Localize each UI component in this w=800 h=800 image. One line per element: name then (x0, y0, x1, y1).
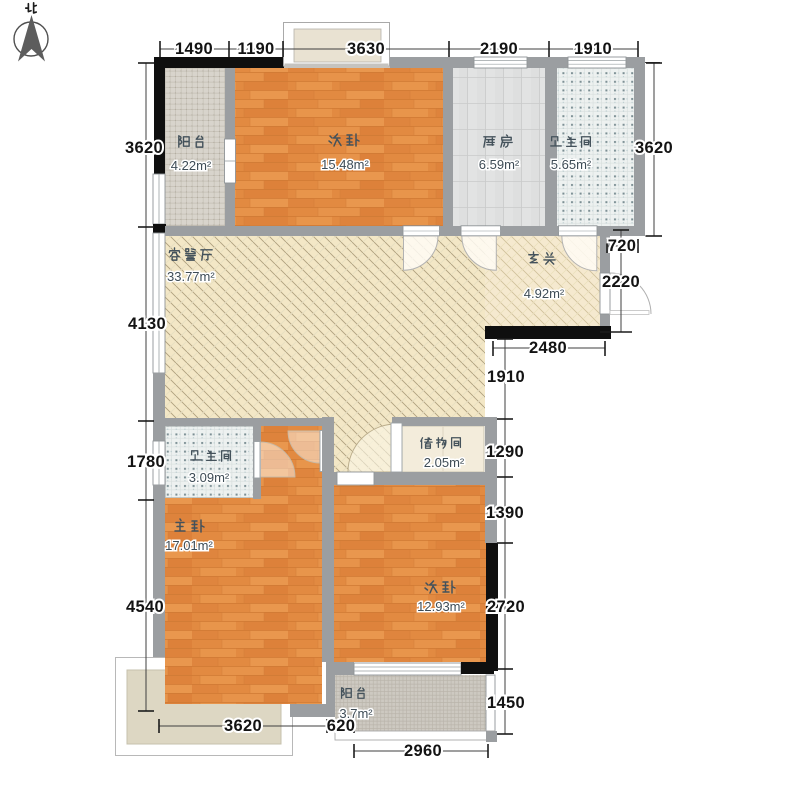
svg-text:4.92m²: 4.92m² (524, 286, 565, 301)
svg-text:4130: 4130 (128, 315, 166, 333)
svg-text:1780: 1780 (127, 453, 165, 471)
svg-text:2480: 2480 (529, 339, 567, 357)
svg-text:1490: 1490 (175, 40, 213, 58)
svg-text:3630: 3630 (347, 40, 385, 58)
svg-text:2720: 2720 (487, 598, 525, 616)
svg-text:2220: 2220 (602, 273, 640, 291)
svg-text:1190: 1190 (238, 40, 275, 58)
svg-text:4.22m²: 4.22m² (171, 158, 212, 173)
svg-text:4540: 4540 (126, 598, 164, 616)
svg-text:3620: 3620 (635, 139, 673, 157)
svg-text:1910: 1910 (487, 368, 525, 386)
svg-text:1290: 1290 (486, 443, 524, 461)
svg-text:2960: 2960 (404, 742, 442, 760)
svg-text:1910: 1910 (574, 40, 612, 58)
svg-text:3620: 3620 (224, 717, 262, 735)
svg-text:33.77m²: 33.77m² (167, 269, 215, 284)
svg-text:3.09m²: 3.09m² (189, 470, 230, 485)
svg-text:6.59m²: 6.59m² (479, 157, 520, 172)
svg-text:2.05m²: 2.05m² (424, 455, 465, 470)
svg-text:3.7m²: 3.7m² (339, 706, 373, 721)
svg-text:720: 720 (608, 237, 636, 255)
svg-text:1450: 1450 (487, 694, 525, 712)
svg-text:2190: 2190 (480, 40, 518, 58)
svg-text:12.93m²: 12.93m² (417, 599, 465, 614)
svg-text:1390: 1390 (486, 504, 524, 522)
svg-text:15.48m²: 15.48m² (321, 157, 369, 172)
svg-text:17.01m²: 17.01m² (165, 538, 213, 553)
svg-text:5.65m²: 5.65m² (551, 157, 592, 172)
svg-text:3620: 3620 (125, 139, 163, 157)
